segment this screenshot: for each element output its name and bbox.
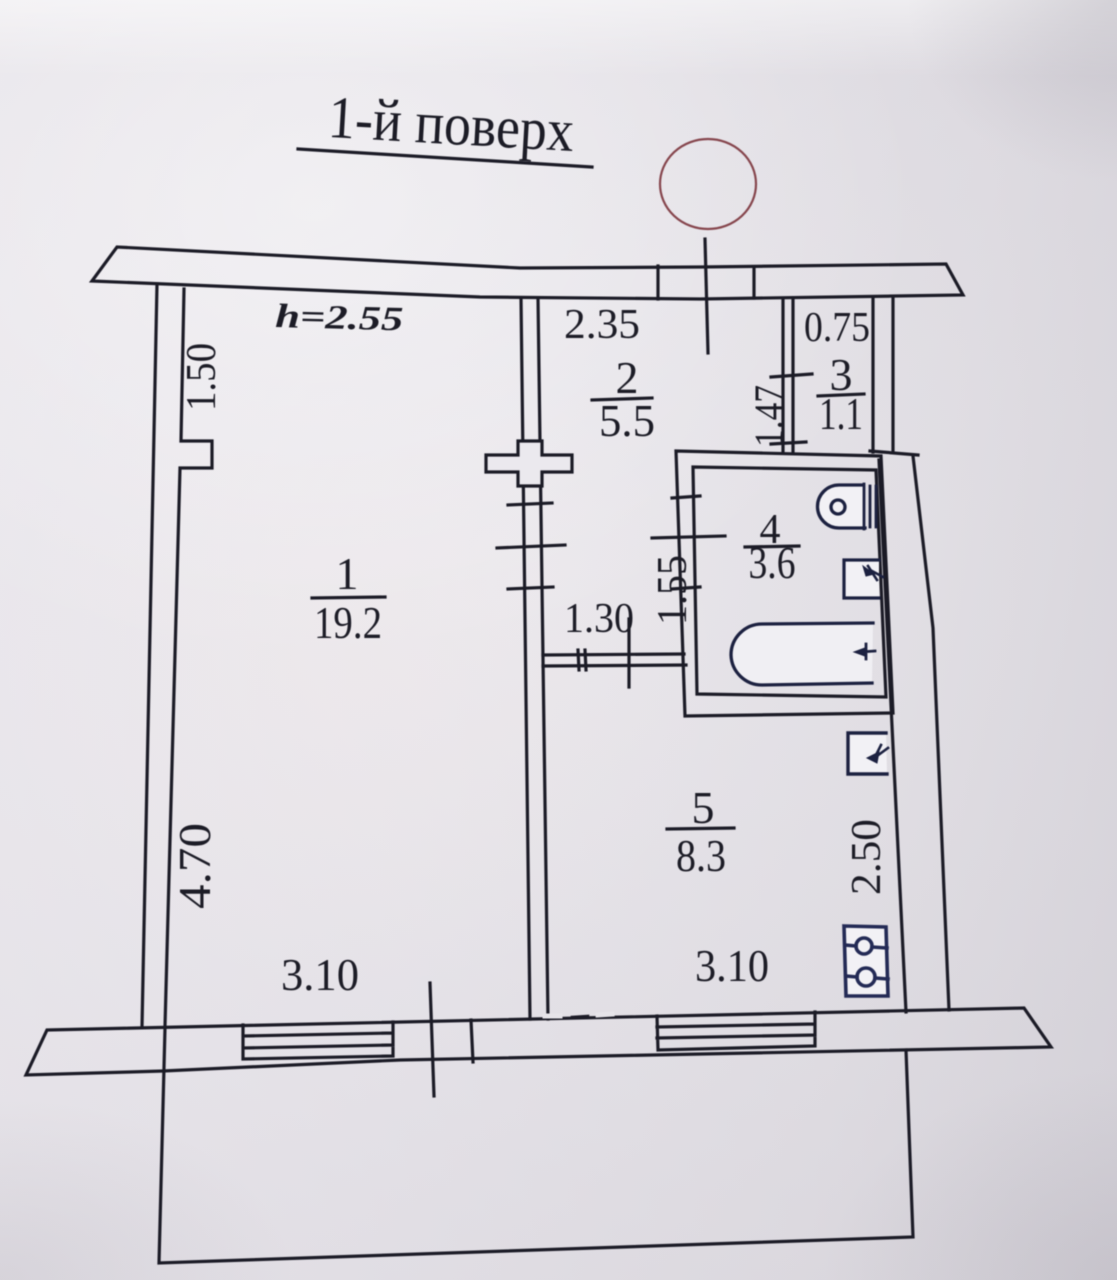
svg-text:3.10: 3.10 (695, 940, 769, 991)
svg-text:1.50: 1.50 (179, 343, 225, 411)
svg-text:5: 5 (692, 782, 715, 833)
svg-text:1.55: 1.55 (650, 555, 696, 625)
svg-text:h=2.55: h=2.55 (275, 298, 404, 338)
svg-text:1: 1 (336, 548, 359, 599)
svg-text:2.35: 2.35 (564, 302, 640, 348)
svg-text:1.30: 1.30 (564, 596, 634, 642)
svg-text:8.3: 8.3 (676, 830, 726, 881)
svg-text:5.5: 5.5 (599, 395, 655, 446)
svg-text:1.47: 1.47 (746, 385, 791, 447)
svg-text:2.50: 2.50 (844, 819, 890, 895)
svg-text:19.2: 19.2 (314, 597, 382, 648)
svg-text:3.10: 3.10 (281, 949, 359, 1000)
svg-text:4.70: 4.70 (169, 823, 220, 909)
svg-text:0.75: 0.75 (804, 305, 870, 351)
